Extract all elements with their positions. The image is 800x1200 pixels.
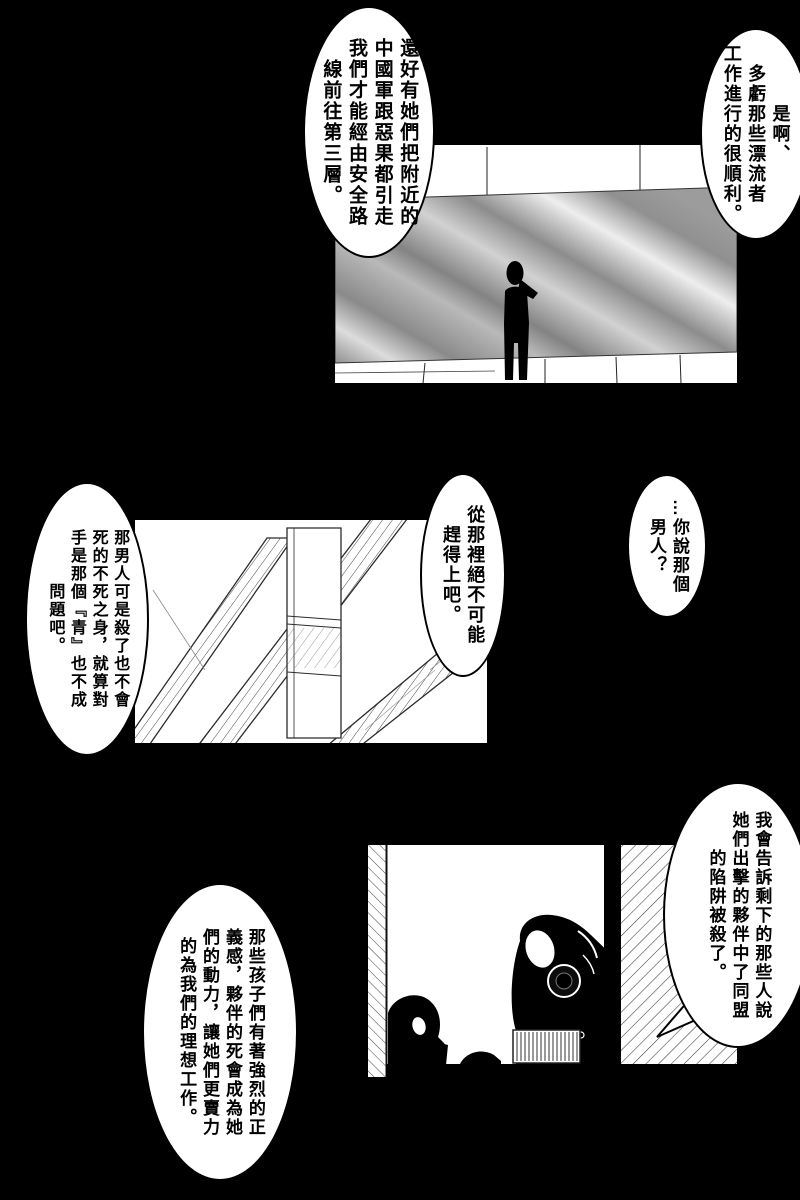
speech-text: 是啊、 多虧那些漂流者 工作進行的很順利。	[720, 44, 793, 224]
speech-bubble-top-left: 還好有她們把附近的 中國軍跟惡果都引走 我們才能經由安全路 線前往第三層。	[303, 6, 435, 258]
speech-text: 從那裡絕不可能 趕得上吧。	[439, 505, 488, 645]
speech-text: 那些孩子們有著強烈的正 義感，夥伴的死會成為她 們的動力，讓她們更賣力 的為我們…	[174, 928, 266, 1137]
speech-text: 還好有她們把附近的 中國軍跟惡果都引走 我們才能經由安全路 線前往第三層。	[318, 38, 421, 227]
speech-bubble-mid-center: 從那裡絕不可能 趕得上吧。	[420, 473, 506, 677]
speech-bubble-mid-left: 那男人可是殺了也不會 死的不死之身，就算對 手是那個『青』也不成 問題吧。	[25, 482, 149, 756]
speech-bubble-bottom-right: 我會告訴剩下的那些人說 她們出擊的夥伴中了同盟 的陷阱被殺了。	[663, 782, 800, 1048]
speech-bubble-mid-right: …你說那個 男人？	[627, 474, 707, 618]
speech-text: 那男人可是殺了也不會 死的不死之身，就算對 手是那個『青』也不成 問題吧。	[44, 529, 130, 709]
striped-crate	[513, 1030, 580, 1063]
speech-text: …你說那個 男人？	[644, 499, 690, 594]
speech-bubble-bottom-left: 那些孩子們有著強烈的正 義感，夥伴的死會成為她 們的動力，讓她們更賣力 的為我們…	[142, 883, 298, 1181]
manga-page: 是啊、 多虧那些漂流者 工作進行的很順利。 還好有她們把附近的 中國軍跟惡果都引…	[0, 0, 800, 1200]
speech-text: 我會告訴剩下的那些人說 她們出擊的夥伴中了同盟 的陷阱被殺了。	[704, 811, 773, 1020]
